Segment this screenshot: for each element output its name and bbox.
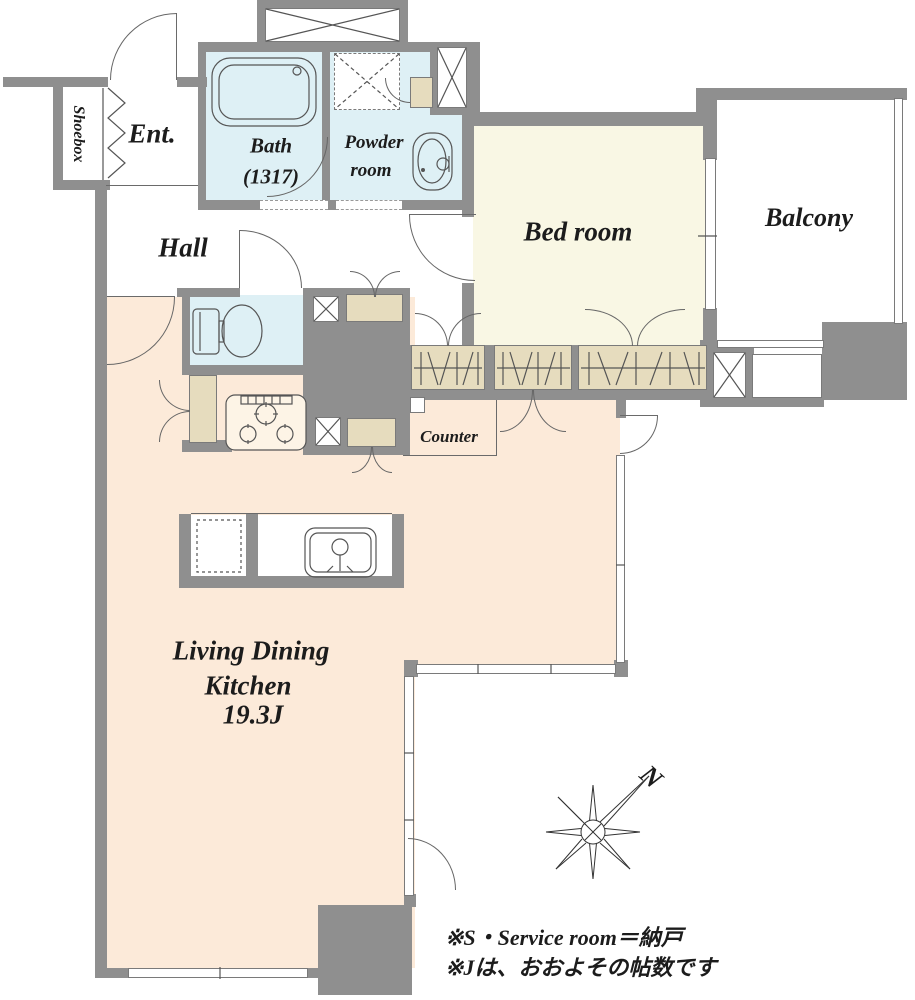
balcony-railing (717, 340, 824, 348)
service-strip (752, 354, 822, 398)
ldk-exit-door-arc (620, 416, 658, 454)
shoebox-label: Shoebox (69, 106, 87, 163)
hall-label: Hall (158, 233, 208, 264)
kitchen-storage (347, 418, 396, 447)
terrace-door-arc (408, 838, 456, 890)
wall-segment (703, 98, 717, 160)
wall-segment (95, 968, 128, 978)
wall-segment (462, 110, 474, 217)
bath-door-threshold (260, 200, 328, 210)
counter-label: Counter (420, 427, 478, 447)
toilet-floor (190, 295, 305, 368)
closet-door-arc (415, 313, 448, 346)
footnote-service-room: ※S・Service room＝納戸 (445, 920, 683, 952)
bedroom-wardrobe (578, 345, 707, 390)
powder-room-label: Powder (344, 132, 403, 154)
north-label: N (633, 759, 668, 795)
bedroom-label: Bed room (524, 217, 633, 248)
island-edge-line (191, 513, 392, 514)
wall-segment (182, 288, 190, 375)
toilet-door-arc (240, 230, 302, 288)
counter-edge-line (496, 400, 497, 456)
wall-segment (257, 0, 408, 8)
island-sink-compartment (258, 515, 392, 576)
ldk-label: Living Dining (173, 636, 330, 667)
wall-segment (328, 200, 336, 210)
pipe-space-x-icon (713, 352, 746, 398)
footnote-jo-count: ※Jは、おおよその帖数です (445, 950, 716, 982)
closet-door-arc (448, 313, 481, 346)
ldk-label: 19.3J (223, 700, 284, 731)
wall-segment (705, 88, 907, 100)
pipe-space-x-icon (315, 417, 341, 446)
wall-segment (182, 365, 308, 375)
pantry-closet (494, 345, 572, 390)
island-wall (179, 576, 404, 588)
wall-segment (322, 50, 330, 200)
window (128, 968, 308, 978)
floor-plan: Shoebox Ent. Bath (1317) Powder room Hal… (0, 0, 915, 1000)
entrance-door-arc (110, 13, 177, 80)
island-wall (392, 514, 404, 588)
powder-cabinet (410, 77, 433, 108)
balcony-pillar (822, 322, 907, 400)
storage-door-arc (375, 271, 400, 297)
wall-segment (198, 42, 206, 210)
wall-segment (462, 112, 710, 126)
pillar-block (318, 905, 412, 995)
pipe-space-x-icon (313, 296, 339, 322)
storage-door-arc (350, 271, 375, 297)
balcony-railing (894, 98, 903, 324)
island-compartment (191, 515, 246, 576)
bath-size-label: (1317) (243, 165, 299, 190)
wall-segment (748, 398, 824, 407)
wall-segment (485, 345, 494, 390)
pipe-space-x-icon (437, 47, 467, 108)
powder-door-threshold (336, 200, 402, 210)
counter-notch (410, 397, 425, 413)
entrance-label: Ent. (128, 119, 175, 150)
bedroom-door-arc (409, 215, 475, 281)
wall-segment (53, 77, 63, 190)
wall-segment (198, 200, 260, 210)
pipe-space-x-icon (265, 8, 400, 42)
ldk-storage (189, 375, 217, 443)
hall-storage (346, 294, 403, 322)
ldk-label: Kitchen (204, 671, 291, 702)
bedroom-balcony-window (705, 158, 716, 310)
wall-segment (95, 180, 107, 978)
island-wall (246, 514, 258, 588)
shoebox-door-icon (103, 88, 125, 180)
window (416, 664, 616, 674)
window (616, 455, 625, 663)
compass-rose-icon (546, 776, 649, 879)
bath-label: Bath (250, 134, 292, 159)
counter-edge-line (403, 455, 497, 456)
balcony-label: Balcony (765, 203, 853, 233)
bedroom-closet (411, 345, 485, 390)
threshold-line (106, 185, 198, 186)
powder-room-label: room (350, 160, 391, 182)
